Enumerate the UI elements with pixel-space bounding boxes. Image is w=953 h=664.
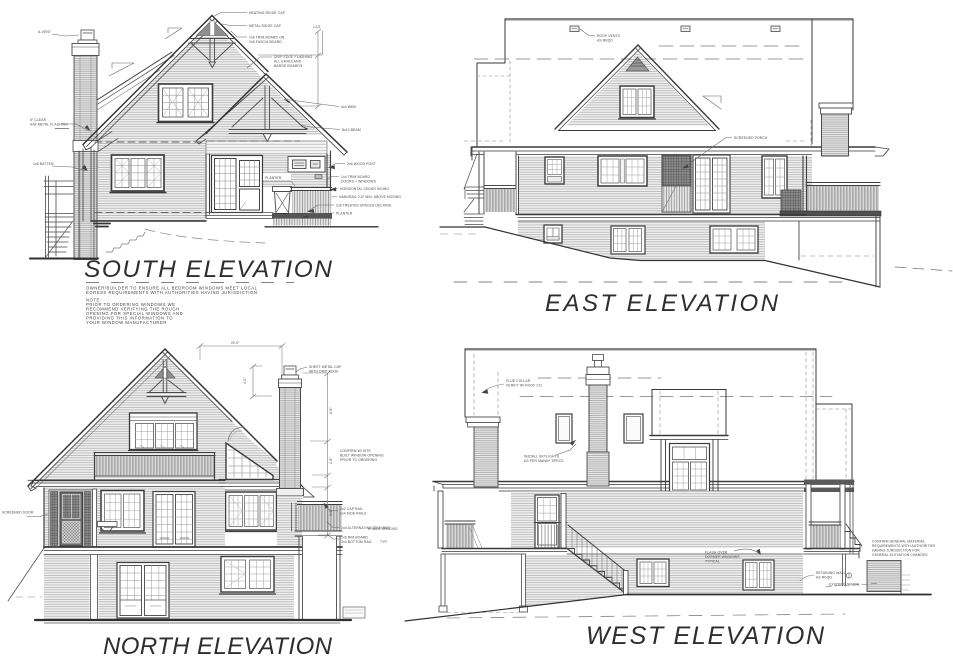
- svg-text:HEATING RIDGE CAP: HEATING RIDGE CAP: [249, 11, 286, 15]
- svg-text:METAL RIDGE CAP: METAL RIDGE CAP: [249, 24, 282, 28]
- svg-text:AS REQD: AS REQD: [816, 576, 832, 580]
- svg-text:8x10 BEAM: 8x10 BEAM: [342, 128, 361, 132]
- svg-text:BARGE BOARDS: BARGE BOARDS: [274, 64, 303, 68]
- svg-text:2x2 CAP RAIL: 2x2 CAP RAIL: [340, 507, 363, 511]
- svg-text:DORMER WINDOWS: DORMER WINDOWS: [705, 555, 740, 559]
- svg-text:1x4 SIDE RAILS: 1x4 SIDE RAILS: [340, 512, 367, 516]
- svg-text:BUILT WINDOW OPENING: BUILT WINDOW OPENING: [340, 454, 384, 458]
- svg-text:SHEET METAL CAP: SHEET METAL CAP: [309, 365, 342, 369]
- svg-text:4″ MAX. SPACING: 4″ MAX. SPACING: [368, 527, 398, 531]
- svg-text:PRIOR TO ORDERING: PRIOR TO ORDERING: [340, 458, 377, 462]
- svg-text:CONFIRM GENERAL MATERIAL: CONFIRM GENERAL MATERIAL: [872, 540, 925, 544]
- svg-text:REQUIREMENTS WITH AUTHORITIES: REQUIREMENTS WITH AUTHORITIES: [872, 544, 936, 548]
- svg-text:1x6 BATTEN: 1x6 BATTEN: [33, 162, 54, 166]
- svg-text:GENERAL ELEVATION CHANGES: GENERAL ELEVATION CHANGES: [872, 553, 928, 557]
- svg-text:SCREENED DOOR: SCREENED DOOR: [2, 511, 34, 515]
- svg-text:A-VENT: A-VENT: [38, 30, 51, 34]
- svg-text:WITH DRIP EDGE: WITH DRIP EDGE: [309, 370, 339, 374]
- svg-text:1x6 TRIM BOARD ON: 1x6 TRIM BOARD ON: [249, 36, 285, 40]
- svg-text:2x6 FASCIA BOARD: 2x6 FASCIA BOARD: [249, 40, 282, 44]
- svg-text:TYPICAL: TYPICAL: [705, 560, 720, 564]
- svg-text:NORTH ELEVATION: NORTH ELEVATION: [103, 633, 333, 660]
- svg-text:HAVING JURISDICTION FOR: HAVING JURISDICTION FOR: [872, 549, 920, 553]
- svg-text:ROOF VENTS: ROOF VENTS: [597, 34, 621, 38]
- svg-text:TYP.: TYP.: [380, 540, 388, 544]
- svg-text:FLASH OVER: FLASH OVER: [705, 551, 728, 555]
- svg-text:4x4 WEB: 4x4 WEB: [341, 105, 356, 109]
- svg-text:PLANTER: PLANTER: [265, 176, 282, 180]
- svg-text:2x6 TREATED SPACED DECKING: 2x6 TREATED SPACED DECKING: [336, 204, 392, 208]
- svg-text:DOORS + WINDOWS: DOORS + WINDOWS: [341, 180, 377, 184]
- svg-text:HORIZONTAL CEDAR SIDING: HORIZONTAL CEDAR SIDING: [340, 187, 389, 191]
- svg-text:4’-0″: 4’-0″: [243, 377, 247, 384]
- svg-text:WEST ELEVATION: WEST ELEVATION: [586, 622, 825, 650]
- svg-text:EXISTING GRADE: EXISTING GRADE: [829, 583, 860, 587]
- svg-text:CONFIRM W/ SITE: CONFIRM W/ SITE: [340, 449, 372, 453]
- svg-text:2x4 BOTTOM RAIL: 2x4 BOTTOM RAIL: [341, 540, 372, 544]
- svg-text:DRIP EDGE FLASHING: DRIP EDGE FLASHING: [274, 55, 313, 59]
- svg-text:SCREENED PORCH: SCREENED PORCH: [734, 136, 768, 140]
- svg-text:EGRESS REQUIREMENTS WITH AUTHO: EGRESS REQUIREMENTS WITH AUTHORITIES HAV…: [86, 290, 257, 295]
- svg-text:INSTALL SKYLIGHTS: INSTALL SKYLIGHTS: [524, 455, 560, 459]
- svg-text:PLANTER: PLANTER: [336, 212, 353, 216]
- svg-text:2’-8″: 2’-8″: [329, 457, 333, 464]
- svg-text:ALL EAVES AND: ALL EAVES AND: [274, 60, 302, 64]
- svg-text:AS REQD: AS REQD: [597, 39, 613, 43]
- svg-text:FLUE COLLAR: FLUE COLLAR: [506, 379, 531, 383]
- svg-text:1x6 RIM BOARD: 1x6 RIM BOARD: [341, 536, 368, 540]
- svg-text:VERIFY W/ ROOF CO.: VERIFY W/ ROOF CO.: [506, 384, 543, 388]
- svg-text:20’-0″: 20’-0″: [231, 341, 240, 345]
- svg-text:HANDRAIL 2-6″ MIN. ABOVE NOSIN: HANDRAIL 2-6″ MIN. ABOVE NOSING: [339, 195, 401, 199]
- svg-text:6’-8″: 6’-8″: [329, 407, 333, 414]
- svg-text:6″ CLEAR: 6″ CLEAR: [30, 118, 47, 122]
- svg-text:2x6 WOOD POST: 2x6 WOOD POST: [347, 162, 376, 166]
- svg-text:YOUR WINDOW MANUFACTURER: YOUR WINDOW MANUFACTURER: [86, 320, 167, 325]
- svg-text:RETAINING WALL: RETAINING WALL: [816, 571, 846, 575]
- svg-text:S/W METAL FLASHING: S/W METAL FLASHING: [30, 123, 68, 127]
- svg-text:1-1/2: 1-1/2: [313, 25, 320, 29]
- svg-text:AS PER MANUF SPECS: AS PER MANUF SPECS: [524, 459, 564, 463]
- svg-text:1x4 TRIM BOARD: 1x4 TRIM BOARD: [341, 175, 370, 179]
